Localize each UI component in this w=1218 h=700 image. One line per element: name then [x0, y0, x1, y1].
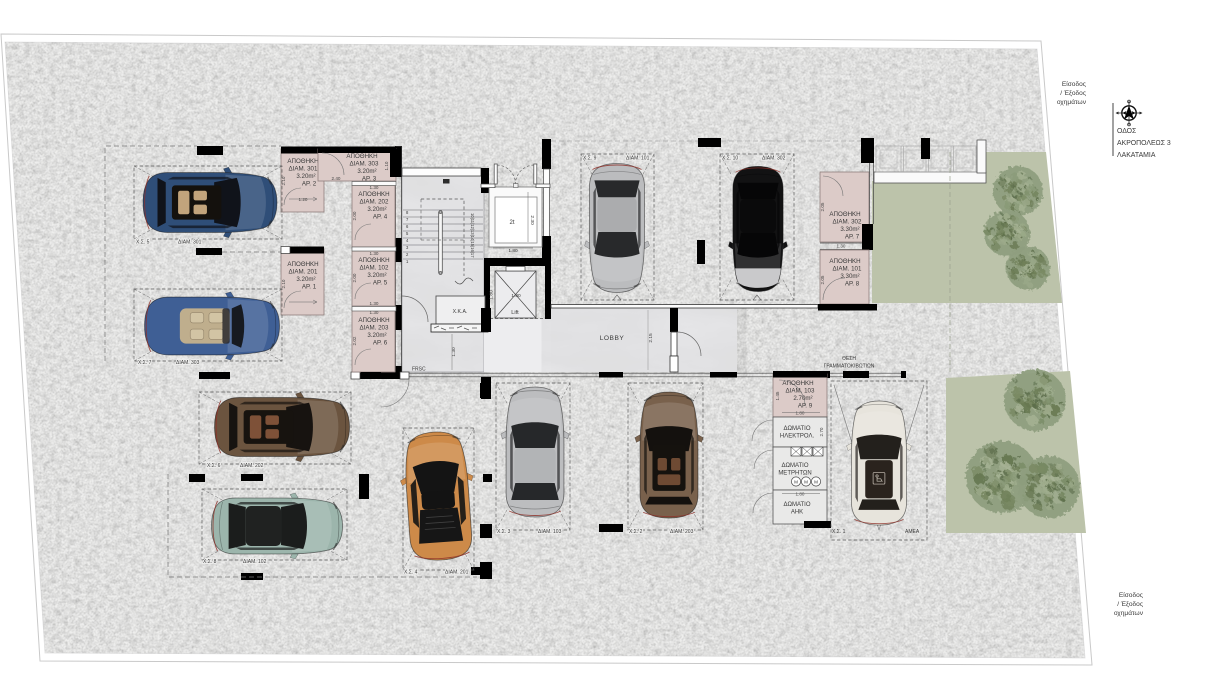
- svg-text:3.20m²: 3.20m²: [367, 206, 386, 213]
- svg-text:ΟΔΟΣ: ΟΔΟΣ: [1117, 128, 1136, 135]
- svg-text:Χ.Σ. 10: Χ.Σ. 10: [722, 156, 738, 162]
- svg-text:ΔΙΑΜ. 201: ΔΙΑΜ. 201: [445, 570, 469, 576]
- svg-text:Χ.Σ. 6: Χ.Σ. 6: [207, 463, 221, 469]
- svg-text:3.30m²: 3.30m²: [840, 273, 859, 280]
- svg-text:ΔΙΑΜ. 301: ΔΙΑΜ. 301: [178, 240, 202, 246]
- svg-text:Είσοδος: Είσοδος: [1062, 80, 1086, 88]
- svg-text:ΔΙΑΜ. 201: ΔΙΑΜ. 201: [289, 269, 318, 276]
- svg-text:ΔΙΑΜ. 103: ΔΙΑΜ. 103: [786, 388, 815, 395]
- svg-text:FRSC: FRSC: [412, 367, 426, 373]
- svg-text:M: M: [804, 480, 808, 485]
- svg-text:1.45: 1.45: [775, 391, 780, 400]
- svg-text:1.80: 1.80: [489, 290, 495, 300]
- svg-text:ΔΙΑΜ. 202: ΔΙΑΜ. 202: [240, 463, 264, 469]
- svg-text:Χ.Σ. 4: Χ.Σ. 4: [404, 570, 418, 576]
- svg-text:3.20m²: 3.20m²: [367, 272, 386, 279]
- svg-text:1.80: 1.80: [796, 492, 805, 497]
- svg-text:1:20: 1:20: [299, 197, 308, 202]
- svg-text:ΑΡ. 4: ΑΡ. 4: [373, 214, 388, 221]
- svg-text:M: M: [794, 480, 798, 485]
- svg-text:LOBBY: LOBBY: [600, 335, 625, 342]
- svg-text:M: M: [814, 480, 818, 485]
- svg-text:ΑΠΟΘΗΚΗ: ΑΠΟΘΗΚΗ: [358, 191, 389, 198]
- svg-text:ΑΡ. 5: ΑΡ. 5: [373, 280, 388, 287]
- svg-text:ΔΙΑΜ. 303: ΔΙΑΜ. 303: [176, 360, 200, 366]
- svg-text:ΑΡ. 9: ΑΡ. 9: [798, 403, 813, 410]
- svg-text:Είσοδος: Είσοδος: [1119, 591, 1143, 599]
- svg-text:ΔΙΑΜ. 302: ΔΙΑΜ. 302: [833, 219, 862, 226]
- svg-text:ΑΡ. 2: ΑΡ. 2: [302, 181, 317, 188]
- svg-text:ΑΗΚ: ΑΗΚ: [791, 510, 803, 516]
- svg-text:ΗΛΕΚΤΡΟΛ.: ΗΛΕΚΤΡΟΛ.: [780, 434, 815, 440]
- svg-text:1.80: 1.80: [796, 411, 805, 416]
- svg-text:Χ.Σ. 7: Χ.Σ. 7: [138, 360, 152, 366]
- svg-text:1.30: 1.30: [837, 244, 846, 249]
- svg-text:ΑΠΟΘΗΚΗ: ΑΠΟΘΗΚΗ: [358, 257, 389, 264]
- svg-text:ΔΙΑΜ. 102: ΔΙΑΜ. 102: [243, 559, 267, 565]
- svg-text:ΔΙΑΜ. 202: ΔΙΑΜ. 202: [360, 199, 389, 206]
- svg-text:ΘΕΣΗ: ΘΕΣΗ: [842, 356, 856, 362]
- svg-text:2.70: 2.70: [819, 427, 824, 436]
- svg-text:ΑΠΟΘΗΚΗ: ΑΠΟΘΗΚΗ: [287, 261, 318, 268]
- svg-text:ΑΠΟΘΗΚΗ: ΑΠΟΘΗΚΗ: [829, 258, 860, 265]
- svg-text:ΑΡ. 1: ΑΡ. 1: [302, 284, 317, 291]
- svg-text:2.00: 2.00: [352, 211, 357, 220]
- svg-text:ΑΡ. 8: ΑΡ. 8: [845, 281, 860, 288]
- svg-text:2.02: 2.02: [352, 336, 357, 345]
- svg-text:9: 9: [445, 180, 447, 184]
- svg-text:1.30: 1.30: [370, 301, 379, 306]
- svg-text:ΔΙΑΜ. 302: ΔΙΑΜ. 302: [762, 156, 786, 162]
- svg-text:Χ.Σ. 8: Χ.Σ. 8: [203, 559, 217, 565]
- svg-text:3.20m²: 3.20m²: [296, 173, 315, 180]
- svg-text:Χ.Σ. 2: Χ.Σ. 2: [629, 529, 643, 535]
- svg-text:ΜΕΤΡΗΤΩΝ: ΜΕΤΡΗΤΩΝ: [778, 471, 811, 477]
- svg-text:1.80: 1.80: [511, 293, 521, 299]
- svg-text:ΔΙΑΜ. 101: ΔΙΑΜ. 101: [626, 156, 650, 162]
- svg-text:Lift: Lift: [511, 310, 519, 316]
- svg-text:ΔΩΜΑΤΙΟ: ΔΩΜΑΤΙΟ: [781, 463, 808, 469]
- svg-text:2.70m²: 2.70m²: [793, 395, 812, 402]
- svg-text:Χ.Σ. 9: Χ.Σ. 9: [583, 156, 597, 162]
- svg-text:ΑΠΟΘΗΚΗ: ΑΠΟΘΗΚΗ: [287, 158, 318, 165]
- svg-text:ΔΙΑΜ. 203: ΔΙΑΜ. 203: [360, 325, 389, 332]
- svg-text:2t: 2t: [509, 220, 514, 226]
- svg-text:3.30m²: 3.30m²: [840, 226, 859, 233]
- svg-text:ΑΜΕΑ: ΑΜΕΑ: [905, 529, 920, 535]
- svg-text:ΑΠΟΘΗΚΗ: ΑΠΟΘΗΚΗ: [358, 317, 389, 324]
- svg-text:ΔΩΜΑΤΙΟ: ΔΩΜΑΤΙΟ: [783, 502, 810, 508]
- svg-text:3.20m²: 3.20m²: [367, 332, 386, 339]
- svg-text:ΑΚΡΟΠΟΛΕΩΣ 3: ΑΚΡΟΠΟΛΕΩΣ 3: [1117, 140, 1171, 147]
- svg-text:10|11|12|13|14|15|16|17: 10|11|12|13|14|15|16|17: [470, 213, 475, 258]
- svg-text:2.15: 2.15: [648, 333, 654, 343]
- svg-text:3.20m²: 3.20m²: [357, 168, 376, 175]
- svg-text:ΔΙΑΜ. 301: ΔΙΑΜ. 301: [289, 166, 318, 173]
- svg-text:2.10: 2.10: [281, 279, 286, 288]
- svg-text:ΑΠΟΘΗΚΗ: ΑΠΟΘΗΚΗ: [346, 153, 377, 160]
- svg-text:2.40: 2.40: [332, 176, 341, 181]
- svg-text:2.00: 2.00: [352, 273, 357, 282]
- svg-text:ΔΩΜΑΤΙΟ: ΔΩΜΑΤΙΟ: [783, 426, 810, 432]
- svg-text:1.30: 1.30: [370, 251, 379, 256]
- svg-text:ΔΙΑΜ. 103: ΔΙΑΜ. 103: [538, 529, 562, 535]
- svg-text:οχημάτων: οχημάτων: [1114, 609, 1144, 617]
- svg-text:2.05: 2.05: [820, 202, 825, 211]
- svg-text:Χ.Κ.Α.: Χ.Κ.Α.: [453, 309, 468, 315]
- svg-text:ΑΡ. 6: ΑΡ. 6: [373, 340, 388, 347]
- svg-text:οχημάτων: οχημάτων: [1057, 98, 1087, 106]
- svg-text:ΔΙΑΜ. 203: ΔΙΑΜ. 203: [670, 529, 694, 535]
- svg-text:Χ.Σ. 5: Χ.Σ. 5: [136, 240, 150, 246]
- svg-text:ΔΙΑΜ. 101: ΔΙΑΜ. 101: [833, 266, 862, 273]
- svg-text:Χ.Σ. 1: Χ.Σ. 1: [832, 529, 846, 535]
- svg-text:/ Έξοδος: / Έξοδος: [1117, 601, 1143, 608]
- svg-text:1.10: 1.10: [384, 161, 389, 170]
- svg-text:3.20m²: 3.20m²: [296, 276, 315, 283]
- svg-text:ΓΡΑΜΜΑΤΟΚΙΒΩΤΙΩΝ: ΓΡΑΜΜΑΤΟΚΙΒΩΤΙΩΝ: [824, 364, 875, 370]
- svg-text:Χ.Σ. 3: Χ.Σ. 3: [497, 529, 511, 535]
- svg-text:2.30: 2.30: [529, 215, 535, 225]
- svg-text:ΛΑΚΑΤΑΜΙΑ: ΛΑΚΑΤΑΜΙΑ: [1117, 152, 1156, 159]
- svg-text:2.05: 2.05: [820, 275, 825, 284]
- svg-text:ΑΡ. 7: ΑΡ. 7: [845, 234, 860, 241]
- svg-text:1.80: 1.80: [508, 248, 518, 254]
- svg-text:ΔΙΑΜ. 102: ΔΙΑΜ. 102: [360, 265, 389, 272]
- svg-text:ΑΠΟΘΗΚΗ: ΑΠΟΘΗΚΗ: [782, 380, 813, 387]
- svg-text:ΔΙΑΜ. 303: ΔΙΑΜ. 303: [350, 161, 379, 168]
- svg-text:ΑΠΟΘΗΚΗ: ΑΠΟΘΗΚΗ: [829, 211, 860, 218]
- svg-text:/ Έξοδος: / Έξοδος: [1060, 90, 1086, 97]
